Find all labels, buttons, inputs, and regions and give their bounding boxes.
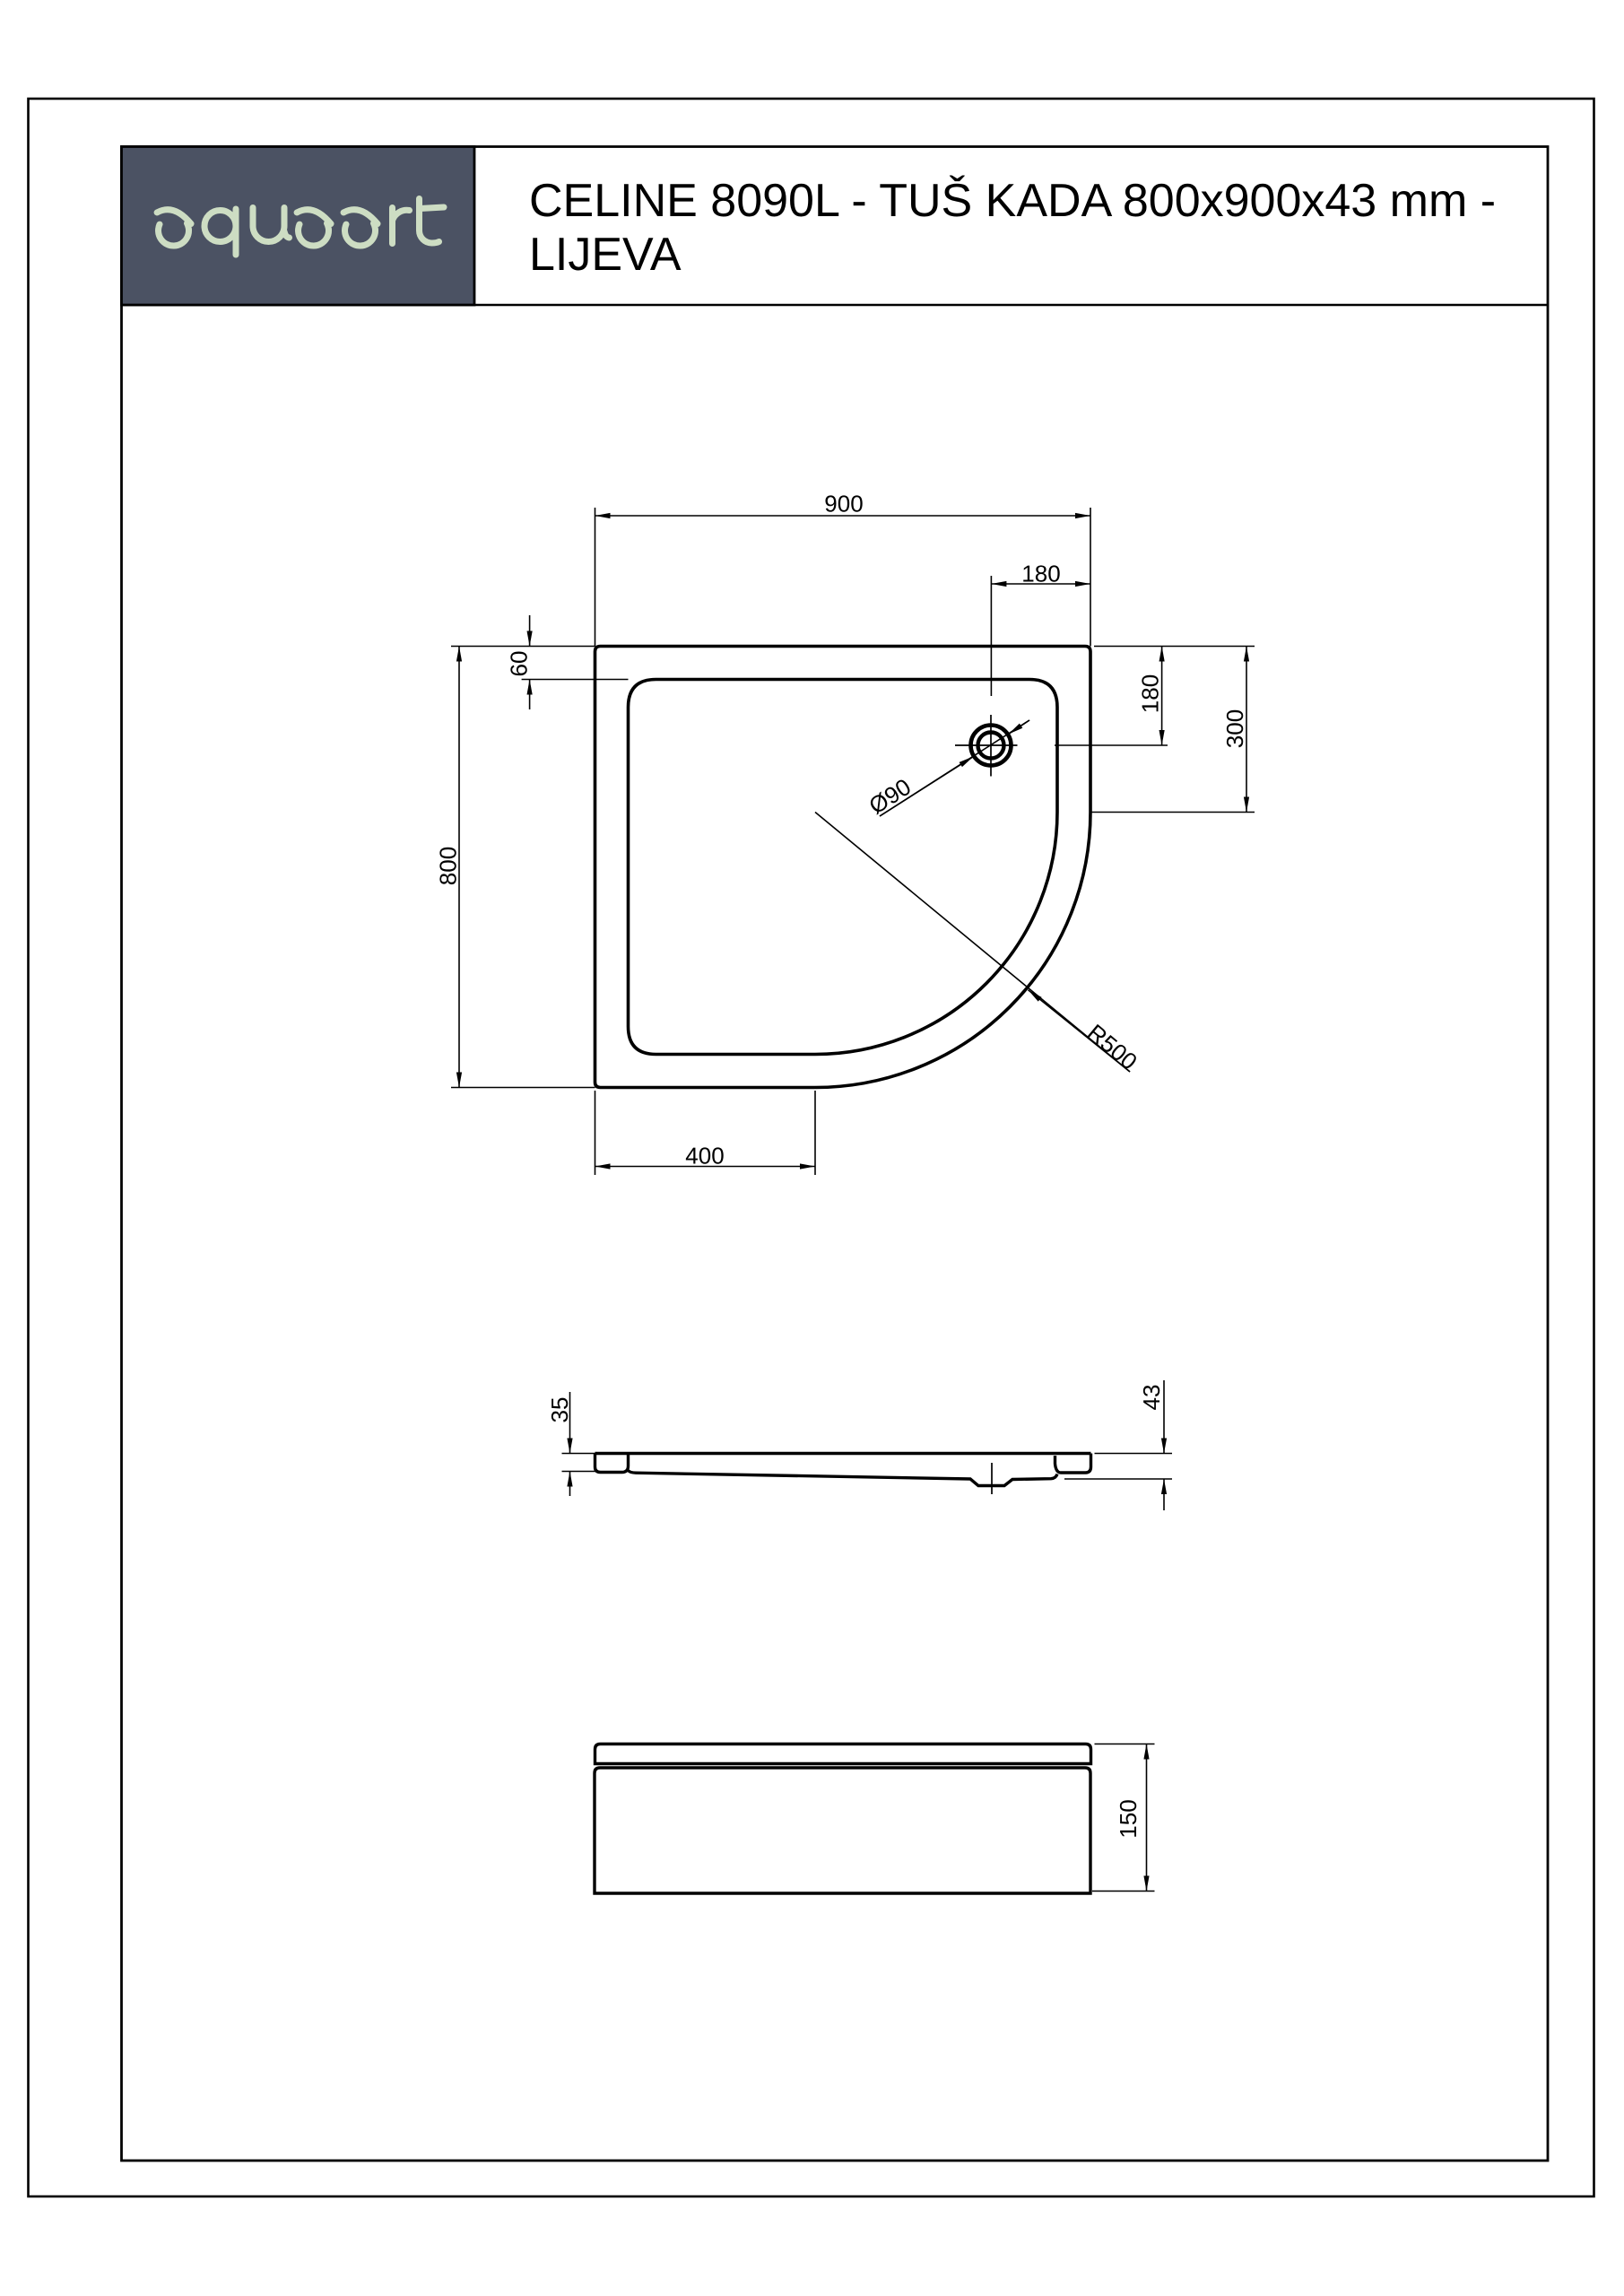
svg-text:180: 180	[1021, 561, 1060, 587]
svg-text:300: 300	[1221, 709, 1248, 748]
svg-text:43: 43	[1138, 1385, 1165, 1411]
svg-text:900: 900	[824, 491, 863, 517]
svg-text:180: 180	[1136, 674, 1163, 713]
svg-text:LIJEVA: LIJEVA	[529, 229, 682, 281]
svg-text:800: 800	[435, 847, 462, 885]
svg-text:35: 35	[546, 1397, 573, 1423]
svg-text:CELINE 8090L - TUŠ KADA 800x90: CELINE 8090L - TUŠ KADA 800x900x43 mm -	[529, 175, 1496, 227]
svg-text:60: 60	[506, 651, 533, 677]
svg-text:150: 150	[1115, 1799, 1142, 1838]
svg-text:400: 400	[685, 1143, 724, 1170]
